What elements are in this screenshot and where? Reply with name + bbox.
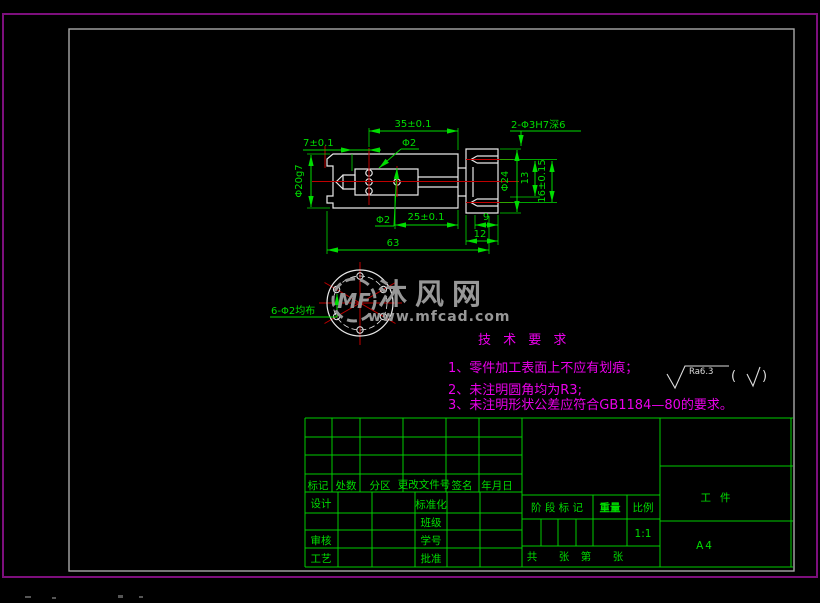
tb-sheets-total: 共 bbox=[527, 551, 538, 563]
tb-weight: 重量 bbox=[600, 501, 621, 514]
tech-req-item-1: 1、零件加工表面上不应有划痕； bbox=[448, 360, 638, 376]
roughness-note: Ra6.3 ( ) bbox=[667, 366, 767, 388]
watermark-site-name: 沐风网 bbox=[378, 277, 489, 311]
dim-7: 7±0.1 bbox=[303, 138, 334, 149]
dim-dia20: Φ20g7 bbox=[294, 164, 305, 197]
tb-zone: 分区 bbox=[370, 480, 391, 492]
roughness-paren-open: ( bbox=[731, 369, 736, 384]
tech-req-item-3: 3、未注明形状公差应符合GB1184—80的要求。 bbox=[448, 397, 733, 413]
tb-design: 设计 bbox=[311, 497, 332, 510]
tb-part-name: 工件 bbox=[701, 492, 740, 504]
tb-scale: 比例 bbox=[633, 501, 654, 514]
tb-sheets-sheet-a: 张 bbox=[559, 551, 570, 563]
tb-student-no: 学号 bbox=[421, 534, 442, 547]
tb-paper-size: A4 bbox=[696, 540, 714, 552]
dim-35: 35±0.1 bbox=[394, 119, 431, 130]
dim-dia24: Φ24 bbox=[500, 171, 511, 192]
dim-63: 63 bbox=[387, 238, 400, 249]
tb-mark: 标记 bbox=[308, 480, 329, 492]
roughness-check-symbol bbox=[747, 367, 760, 386]
tb-sign: 签名 bbox=[452, 479, 473, 492]
dim-dia2-bottom: Φ2 bbox=[376, 215, 390, 226]
tb-sheets-sheet-b: 张 bbox=[613, 551, 624, 563]
watermark-logo-text: MF bbox=[337, 289, 371, 313]
tb-class: 班级 bbox=[421, 517, 442, 529]
dim-dia2-top: Φ2 bbox=[402, 138, 416, 149]
dim-9: 9 bbox=[483, 212, 489, 223]
title-block: 标记 处数 分区 更改文件号 签名 年月日 设计 标准化 班级 审核 学号 工艺… bbox=[305, 418, 793, 567]
cad-viewport: 35±0.1 7±0.1 Φ2 Φ2 25±0.1 9 12 63 Φ20g7 … bbox=[0, 0, 820, 603]
note-radial-holes: 6-Φ2均布 bbox=[271, 305, 315, 317]
tb-scale-value: 1:1 bbox=[635, 528, 652, 540]
tb-stage-label: 阶 段 标 记 bbox=[531, 501, 584, 514]
tb-approve: 批准 bbox=[421, 552, 442, 565]
tb-process: 工艺 bbox=[311, 553, 332, 565]
tb-count: 处数 bbox=[336, 479, 357, 492]
clipped-bottom-text bbox=[25, 595, 143, 599]
roughness-value: Ra6.3 bbox=[689, 367, 713, 377]
dim-25: 25±0.1 bbox=[407, 212, 444, 223]
dim-13: 13 bbox=[520, 172, 531, 185]
dim-12: 12 bbox=[474, 229, 487, 240]
tb-check: 审核 bbox=[311, 534, 332, 547]
tb-sheets-no: 第 bbox=[581, 550, 592, 563]
tb-standard: 标准化 bbox=[415, 498, 447, 511]
dim-16: 16±0.15 bbox=[537, 159, 548, 202]
tech-req-item-2: 2、未注明圆角均为R3; bbox=[448, 383, 582, 398]
cad-drawing-canvas: 35±0.1 7±0.1 Φ2 Φ2 25±0.1 9 12 63 Φ20g7 … bbox=[0, 0, 820, 603]
tb-date: 年月日 bbox=[481, 479, 513, 492]
note-flange-holes: 2-Φ3H7深6 bbox=[511, 119, 565, 131]
tech-req-title: 技 术 要 求 bbox=[478, 333, 570, 348]
tb-doc-no: 更改文件号 bbox=[398, 478, 451, 491]
roughness-paren-close: ) bbox=[762, 369, 767, 384]
watermark-site-url: www.mfcad.com bbox=[368, 309, 511, 325]
